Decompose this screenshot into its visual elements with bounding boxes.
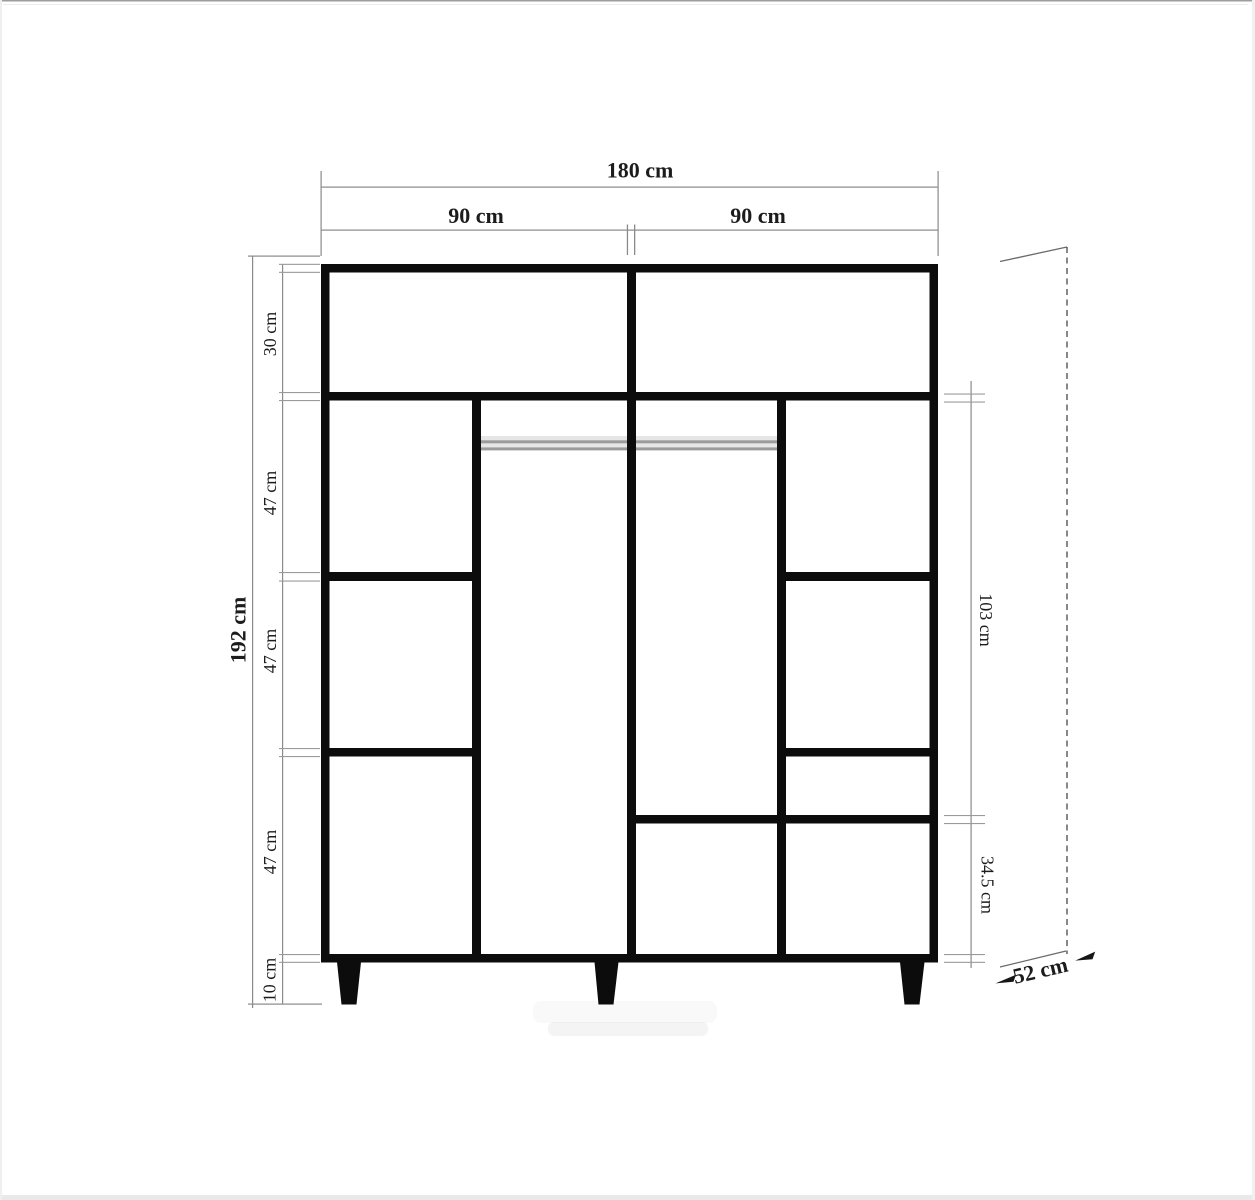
- svg-text:180 cm: 180 cm: [607, 158, 674, 183]
- svg-text:103 cm: 103 cm: [976, 593, 996, 647]
- svg-text:34.5 cm: 34.5 cm: [978, 856, 998, 914]
- svg-text:47 cm: 47 cm: [260, 629, 280, 674]
- svg-text:47 cm: 47 cm: [260, 471, 280, 516]
- svg-text:192 cm: 192 cm: [226, 597, 251, 664]
- svg-text:10 cm: 10 cm: [260, 958, 280, 1003]
- svg-text:90 cm: 90 cm: [448, 203, 504, 228]
- svg-text:47 cm: 47 cm: [260, 830, 280, 875]
- svg-text:30 cm: 30 cm: [260, 312, 280, 357]
- svg-text:90 cm: 90 cm: [730, 203, 786, 228]
